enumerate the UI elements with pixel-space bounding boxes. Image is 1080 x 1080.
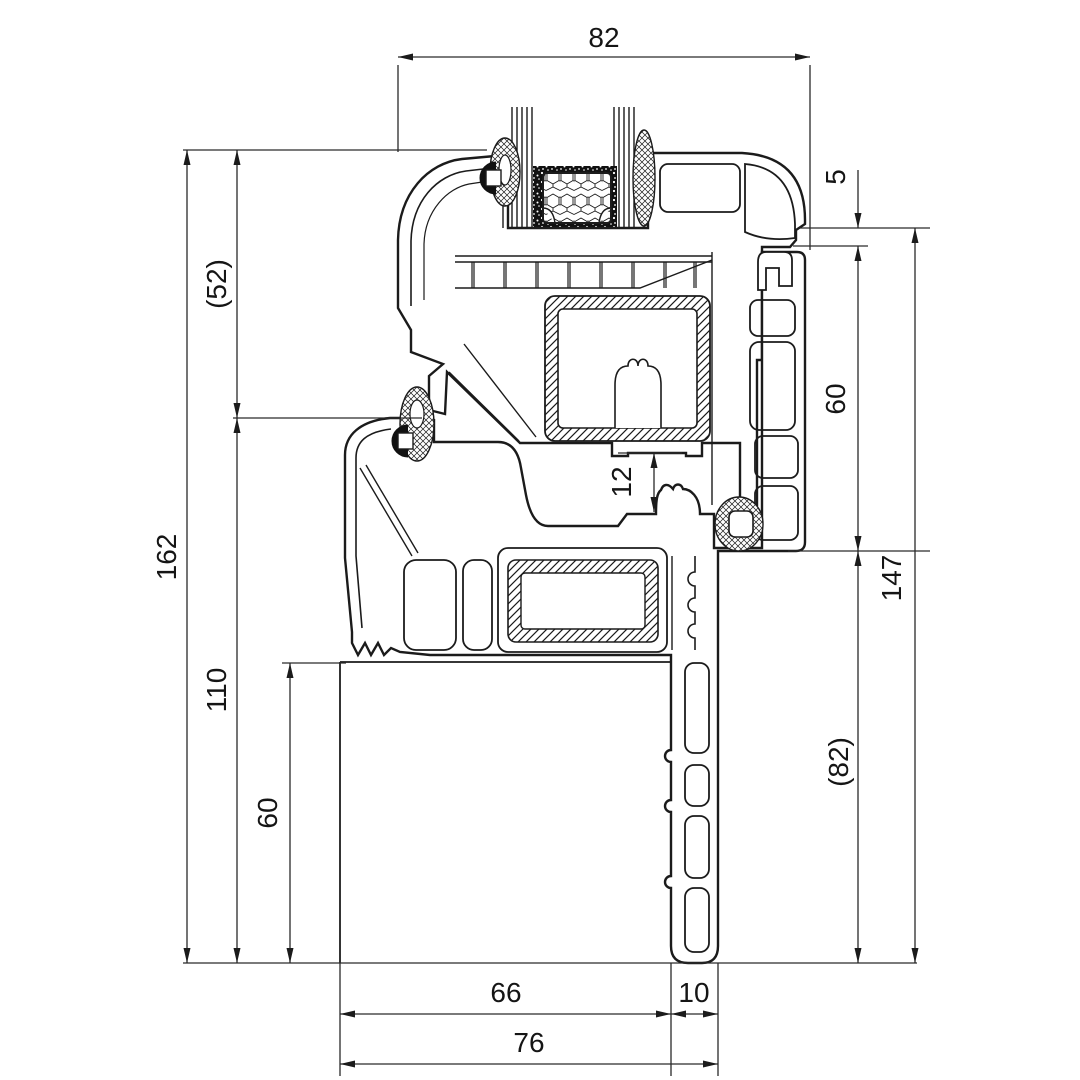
dim-bottom-total: 76 [513, 1027, 544, 1058]
dim-left-upper: (52) [201, 259, 232, 309]
dim-left-mid: 110 [201, 668, 232, 713]
sill-void [340, 662, 671, 963]
dim-middle-rebate: 12 [606, 466, 637, 497]
dim-right-frame: 60 [820, 383, 851, 414]
dim-right-gap: 5 [820, 169, 851, 185]
frame-steel-reinforcement [498, 548, 667, 652]
sash-steel-reinforcement [545, 296, 710, 441]
dim-bottom-inner: 66 [490, 977, 521, 1008]
glazing-bead-clip [484, 166, 501, 190]
dim-left-total: 162 [151, 534, 182, 581]
dim-bottom-leg: 10 [678, 977, 709, 1008]
profile-geometry [340, 107, 805, 963]
dim-right-total: 147 [876, 555, 907, 602]
window-profile-section-drawing: 82 162 (52) 110 60 5 60 147 (82) 12 66 1… [0, 0, 1080, 1080]
dim-top-width: 82 [588, 22, 619, 53]
frame-clip [396, 429, 413, 453]
glass-spacer-honeycomb [543, 173, 611, 223]
dim-left-lower: 60 [252, 797, 283, 828]
screw-channel-dome [615, 359, 661, 428]
technical-drawing-canvas: 82 162 (52) 110 60 5 60 147 (82) 12 66 1… [0, 0, 1080, 1080]
glazing-gasket-right [633, 130, 655, 226]
dim-right-leg: (82) [823, 737, 854, 787]
